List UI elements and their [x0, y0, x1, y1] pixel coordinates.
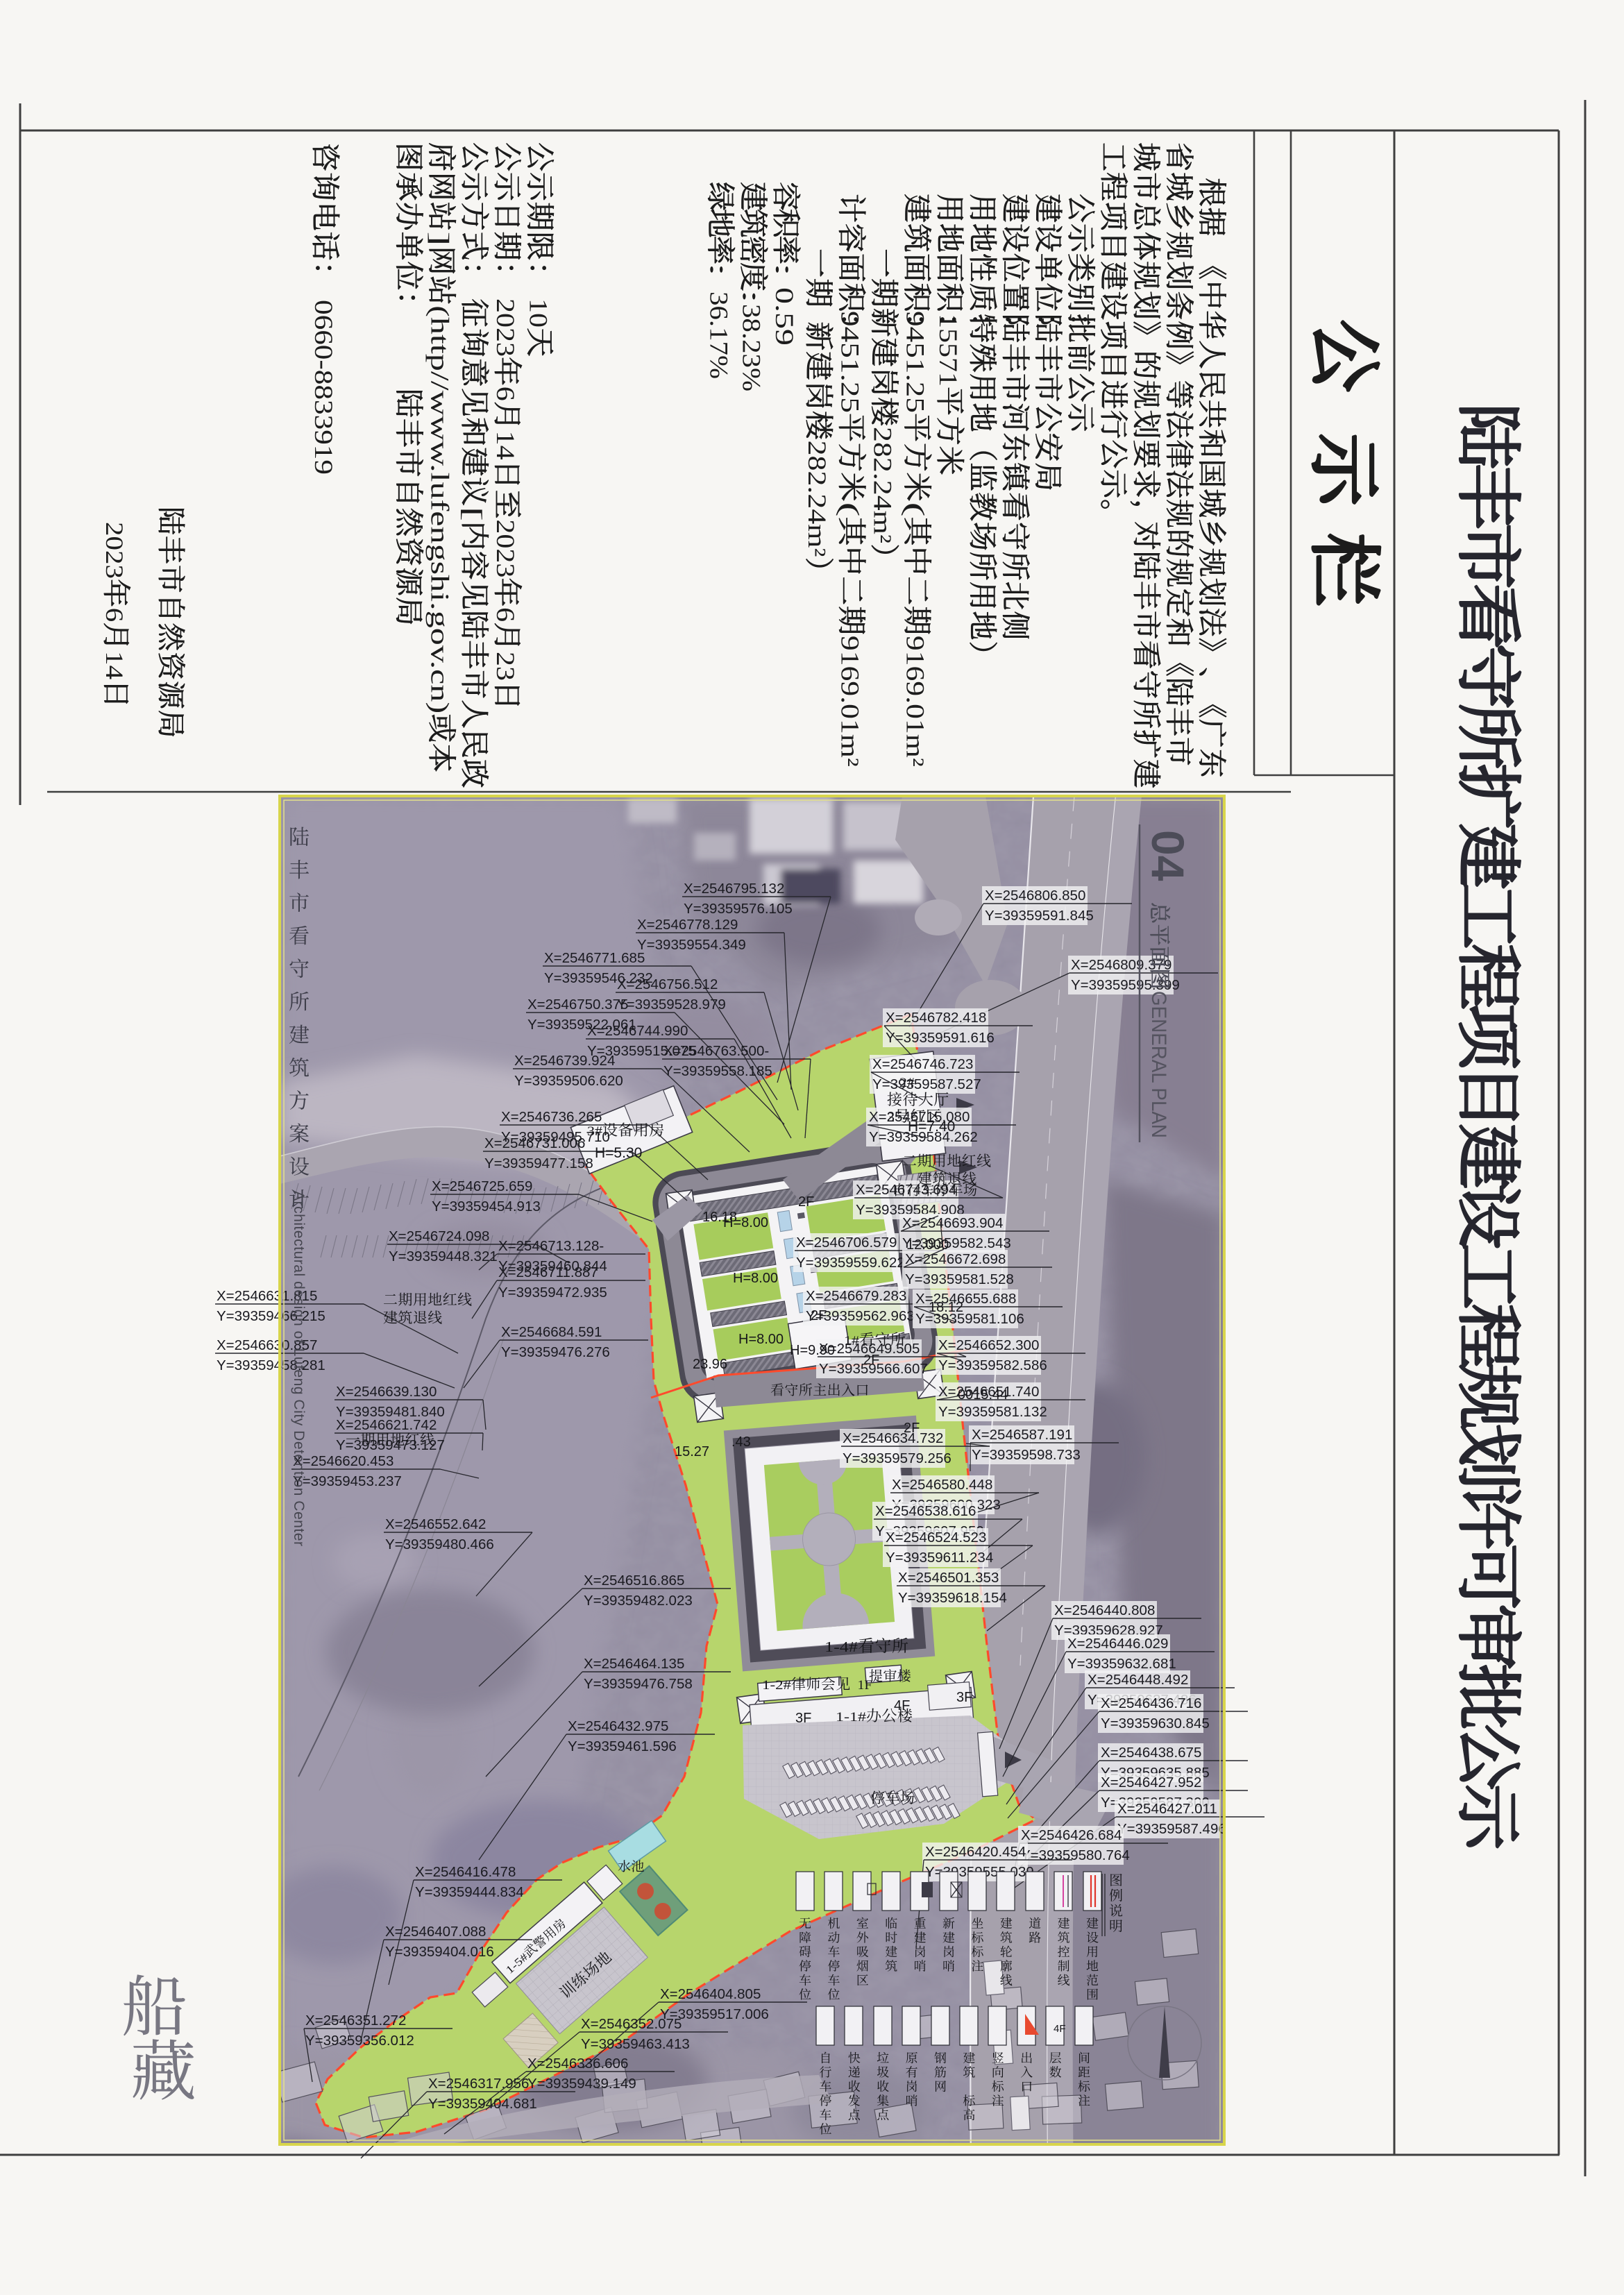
- svg-text:2F: 2F: [811, 1308, 827, 1323]
- svg-text:X=2546448.492: X=2546448.492: [1088, 1672, 1188, 1688]
- svg-text:(: (: [835, 502, 863, 517]
- svg-text:H=7.40: H=7.40: [908, 1119, 955, 1135]
- svg-text:Y=39359439.149: Y=39359439.149: [527, 2076, 636, 2092]
- svg-text:Y=39359404.681: Y=39359404.681: [428, 2096, 537, 2112]
- svg-text:10: 10: [523, 298, 552, 328]
- svg-text:Y=39359453.237: Y=39359453.237: [293, 1473, 402, 1489]
- svg-text:X=2546706.579: X=2546706.579: [796, 1235, 897, 1251]
- svg-text:3: 3: [887, 1110, 895, 1125]
- svg-text:4F: 4F: [894, 1698, 910, 1713]
- svg-text:6: 6: [491, 607, 519, 622]
- svg-text:6: 6: [101, 608, 128, 623]
- svg-text:X=2546806.850: X=2546806.850: [985, 888, 1085, 904]
- svg-text:3#: 3#: [587, 1124, 602, 1139]
- svg-text:Y=39359476.758: Y=39359476.758: [584, 1676, 693, 1692]
- svg-text::: :: [737, 289, 766, 304]
- svg-text:X=2546432.975: X=2546432.975: [568, 1718, 668, 1734]
- svg-text:X=2546420.454: X=2546420.454: [925, 1844, 1026, 1860]
- svg-text:X=2546440.808: X=2546440.808: [1054, 1602, 1155, 1618]
- svg-text:16.18: 16.18: [702, 1210, 737, 1225]
- svg-text:]: ]: [425, 232, 454, 246]
- svg-text:X=2546621.742: X=2546621.742: [336, 1417, 437, 1433]
- svg-text:Y=39359587.496: Y=39359587.496: [1117, 1821, 1226, 1837]
- svg-text:X=2546351.272: X=2546351.272: [305, 2013, 406, 2029]
- svg-text:X=2546427.952: X=2546427.952: [1101, 1775, 1201, 1790]
- svg-text:2023: 2023: [491, 298, 519, 357]
- svg-text:Y=39359448.321: Y=39359448.321: [389, 1248, 498, 1264]
- svg-text:Y=39359356.012: Y=39359356.012: [305, 2033, 414, 2049]
- svg-text:X=2546407.088: X=2546407.088: [385, 1924, 486, 1940]
- svg-text:X=2546778.129: X=2546778.129: [637, 917, 738, 933]
- svg-text:Y=39359528.979: Y=39359528.979: [617, 997, 726, 1013]
- svg-text:3F: 3F: [795, 1711, 811, 1726]
- svg-text:X=2546436.716: X=2546436.716: [1101, 1695, 1201, 1711]
- svg-text:04: 04: [1142, 830, 1194, 881]
- svg-text:X=2546501.353: X=2546501.353: [898, 1570, 999, 1586]
- svg-text:Y=39359444.834: Y=39359444.834: [415, 1884, 524, 1900]
- svg-text:GENERAL PLAN: GENERAL PLAN: [1147, 991, 1170, 1138]
- svg-text:Y=39359454.913: Y=39359454.913: [432, 1199, 541, 1214]
- svg-text:Y=39359630.845: Y=39359630.845: [1101, 1716, 1210, 1731]
- svg-text:Y=39359404.016: Y=39359404.016: [385, 1944, 494, 1960]
- svg-text:9169.01m²: 9169.01m²: [835, 636, 863, 767]
- svg-text:X=2546672.698: X=2546672.698: [905, 1251, 1006, 1267]
- svg-text:2023: 2023: [101, 522, 128, 579]
- svg-text:Architectural design of Lufeng: Architectural design of Lufeng City Dete…: [291, 1191, 307, 1546]
- svg-text:Y=39359591.616: Y=39359591.616: [886, 1030, 995, 1046]
- svg-text:X=2546427.011: X=2546427.011: [1117, 1801, 1217, 1817]
- svg-text:282.24m²: 282.24m²: [868, 427, 897, 543]
- svg-text:X=2546620.453: X=2546620.453: [293, 1453, 394, 1469]
- svg-text:0015.44: 0015.44: [958, 1387, 1008, 1403]
- svg-text:Y=39359461.596: Y=39359461.596: [568, 1738, 677, 1754]
- svg-text:X=2546713.128-: X=2546713.128-: [498, 1238, 604, 1254]
- svg-text:Y=39359598.733: Y=39359598.733: [972, 1447, 1081, 1463]
- svg-text:12.000: 12.000: [906, 1237, 949, 1253]
- svg-text:X=2546438.675: X=2546438.675: [1101, 1745, 1201, 1761]
- svg-text:Y=39359591.845: Y=39359591.845: [985, 908, 1094, 924]
- svg-text:2F: 2F: [863, 1353, 879, 1368]
- svg-text:Y=39359463.413: Y=39359463.413: [581, 2036, 690, 2052]
- svg-text:.43: .43: [731, 1434, 751, 1450]
- svg-text:Y=39359558.185: Y=39359558.185: [663, 1063, 772, 1079]
- svg-text:X=2546587.191: X=2546587.191: [972, 1427, 1072, 1443]
- svg-text:X=2546352.075: X=2546352.075: [581, 2016, 682, 2032]
- svg-text:X=2546446.029: X=2546446.029: [1067, 1636, 1168, 1652]
- svg-text:2023: 2023: [491, 519, 519, 577]
- svg-text:282.24m²: 282.24m²: [802, 441, 831, 557]
- svg-text:X=2546634.732: X=2546634.732: [843, 1430, 943, 1446]
- svg-text:H=8.00: H=8.00: [738, 1332, 784, 1347]
- svg-text:Y=39359579.256: Y=39359579.256: [843, 1450, 951, 1466]
- svg-text:0660-8833919: 0660-8833919: [309, 300, 337, 475]
- svg-text:2#: 2#: [899, 1076, 915, 1090]
- svg-text:X=2546639.130: X=2546639.130: [336, 1384, 437, 1400]
- svg-text:X=2546552.642: X=2546552.642: [385, 1516, 486, 1532]
- svg-text:Y=39359472.935: Y=39359472.935: [498, 1285, 607, 1301]
- svg-text:X=2546739.924: X=2546739.924: [514, 1053, 615, 1069]
- svg-text:X=2546756.512: X=2546756.512: [617, 976, 718, 992]
- svg-text:Y=39359632.681: Y=39359632.681: [1067, 1656, 1176, 1672]
- svg-text:9451.25: 9451.25: [835, 311, 863, 413]
- svg-text:14: 14: [491, 431, 519, 460]
- svg-text:1-4#: 1-4#: [824, 1638, 858, 1655]
- svg-text:3F: 3F: [956, 1690, 972, 1705]
- svg-text:15.27: 15.27: [675, 1444, 709, 1459]
- svg-text:X=2546684.591: X=2546684.591: [501, 1324, 602, 1340]
- svg-text:Y=39359581.132: Y=39359581.132: [938, 1404, 1047, 1420]
- svg-text:X=2546724.098: X=2546724.098: [389, 1228, 489, 1244]
- svg-text:X=2546731.006: X=2546731.006: [484, 1135, 585, 1151]
- svg-text:15571: 15571: [933, 314, 962, 387]
- svg-text:23.96: 23.96: [693, 1357, 727, 1372]
- svg-text:36.17%: 36.17%: [704, 291, 733, 379]
- svg-text:X=2546746.723: X=2546746.723: [872, 1056, 973, 1072]
- svg-text:0.59: 0.59: [770, 287, 798, 346]
- svg-text:Y=39359458.281: Y=39359458.281: [217, 1357, 325, 1373]
- svg-text:Y=39359554.349: Y=39359554.349: [637, 937, 746, 953]
- svg-text:[: [: [458, 507, 487, 521]
- svg-text:Y=39359506.620: Y=39359506.620: [514, 1073, 623, 1089]
- svg-text:X=2546763.500-: X=2546763.500-: [663, 1043, 769, 1059]
- svg-text:Y=39359580.764: Y=39359580.764: [1021, 1847, 1130, 1863]
- svg-text:X=2546725.659: X=2546725.659: [432, 1178, 532, 1194]
- svg-text:X=2546580.448: X=2546580.448: [892, 1477, 992, 1493]
- svg-text:X=2546736.265: X=2546736.265: [501, 1109, 602, 1125]
- svg-text:1-1#: 1-1#: [836, 1710, 866, 1725]
- svg-text:1#: 1#: [844, 1334, 859, 1348]
- svg-text:Y=39359466.215: Y=39359466.215: [217, 1308, 325, 1324]
- svg-text:X=2546750.375: X=2546750.375: [527, 997, 628, 1013]
- svg-text::: :: [770, 262, 798, 277]
- svg-text:X=2546336.606: X=2546336.606: [527, 2056, 628, 2072]
- svg-text:H=5.30: H=5.30: [595, 1145, 642, 1161]
- svg-text:4F: 4F: [1054, 2023, 1066, 2035]
- svg-text:14: 14: [101, 651, 128, 679]
- svg-text:X=2546711.887: X=2546711.887: [498, 1264, 598, 1280]
- svg-text:Y=39359477.158: Y=39359477.158: [484, 1155, 593, 1171]
- svg-text:X=2546524.523: X=2546524.523: [886, 1530, 986, 1545]
- svg-text:2F: 2F: [798, 1194, 814, 1210]
- svg-text:1-2#: 1-2#: [762, 1679, 791, 1693]
- svg-text:Y=39359611.234: Y=39359611.234: [886, 1550, 993, 1566]
- svg-text:2F: 2F: [904, 1421, 920, 1436]
- svg-text:X=2546693.904: X=2546693.904: [902, 1215, 1003, 1231]
- svg-text:Y=39359576.105: Y=39359576.105: [684, 901, 793, 917]
- svg-text::: :: [704, 262, 733, 277]
- svg-text:X=2546317.956: X=2546317.956: [428, 2076, 529, 2092]
- svg-text:X=2546782.418: X=2546782.418: [886, 1010, 986, 1026]
- svg-text:X=2546404.805: X=2546404.805: [660, 1986, 761, 2002]
- svg-text:X=2546652.300: X=2546652.300: [938, 1337, 1039, 1353]
- svg-text:Y=39359476.276: Y=39359476.276: [501, 1344, 610, 1360]
- svg-text:X=2546795.132: X=2546795.132: [684, 881, 784, 897]
- svg-text:38.23%: 38.23%: [737, 304, 766, 391]
- svg-text:Y=39359587.527: Y=39359587.527: [872, 1076, 981, 1092]
- svg-text:X=2546771.685: X=2546771.685: [544, 950, 645, 966]
- svg-text:Y=39359482.023: Y=39359482.023: [584, 1593, 693, 1609]
- svg-text:Y=39359582.586: Y=39359582.586: [938, 1357, 1047, 1373]
- svg-text:18.12: 18.12: [929, 1300, 963, 1315]
- svg-text:X=2546679.283: X=2546679.283: [806, 1288, 906, 1304]
- svg-text:Y=39359618.154: Y=39359618.154: [898, 1590, 1007, 1606]
- svg-text:H=8.00: H=8.00: [733, 1271, 778, 1286]
- svg-text:Y=39359581.528: Y=39359581.528: [905, 1271, 1014, 1287]
- svg-text:X=2546744.990: X=2546744.990: [587, 1023, 688, 1039]
- svg-text:X=2546464.135: X=2546464.135: [584, 1656, 684, 1672]
- svg-text:X=2546516.865: X=2546516.865: [584, 1573, 684, 1589]
- svg-text:X=2546426.684: X=2546426.684: [1021, 1827, 1122, 1843]
- svg-text:Y=39359480.466: Y=39359480.466: [385, 1536, 494, 1552]
- svg-text:9451.25: 9451.25: [901, 311, 929, 413]
- svg-text:Y=39359559.622: Y=39359559.622: [796, 1255, 905, 1271]
- svg-text:X=2546538.616: X=2546538.616: [875, 1503, 976, 1519]
- svg-text:(: (: [901, 502, 929, 517]
- svg-text:(http//www.lufengshi.gov.cn): (http//www.lufengshi.gov.cn): [425, 305, 454, 713]
- svg-text:X=2546416.478: X=2546416.478: [415, 1864, 516, 1880]
- svg-text:9169.01m²: 9169.01m²: [901, 636, 929, 767]
- svg-text:23: 23: [491, 652, 519, 681]
- svg-text:H=9.90: H=9.90: [790, 1343, 835, 1358]
- svg-text:6: 6: [491, 387, 519, 401]
